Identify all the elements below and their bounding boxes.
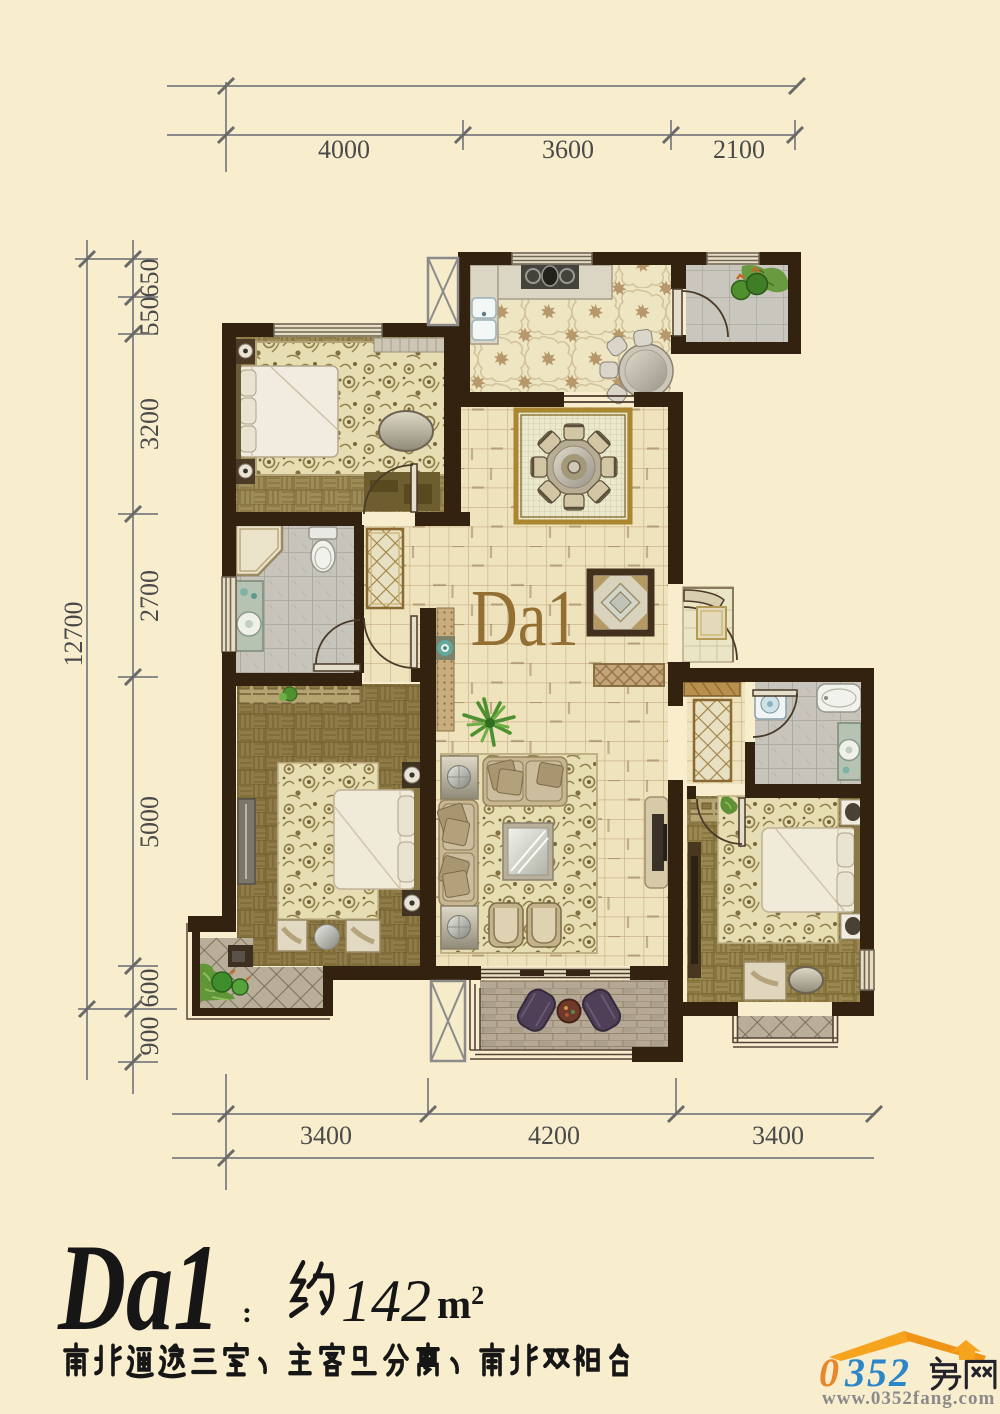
svg-text:Da1: Da1 xyxy=(471,573,579,662)
svg-text:5000: 5000 xyxy=(135,796,164,848)
svg-text:3400: 3400 xyxy=(300,1121,352,1150)
svg-text:3400: 3400 xyxy=(752,1121,804,1150)
svg-text::: : xyxy=(242,1296,252,1329)
svg-text:2100: 2100 xyxy=(713,135,765,164)
svg-text:142: 142 xyxy=(341,1268,431,1334)
svg-text:650: 650 xyxy=(135,259,164,298)
svg-text:3200: 3200 xyxy=(135,398,164,450)
svg-text:2700: 2700 xyxy=(135,570,164,622)
svg-text:3600: 3600 xyxy=(542,135,594,164)
svg-text:Da1: Da1 xyxy=(57,1219,220,1356)
svg-text:12700: 12700 xyxy=(59,602,88,667)
svg-text:600: 600 xyxy=(135,969,164,1008)
svg-text:www.0352fang.com: www.0352fang.com xyxy=(822,1388,995,1409)
svg-text:4000: 4000 xyxy=(318,135,370,164)
svg-text:900: 900 xyxy=(135,1017,164,1056)
svg-text:550: 550 xyxy=(135,297,164,336)
svg-text:4200: 4200 xyxy=(528,1121,580,1150)
